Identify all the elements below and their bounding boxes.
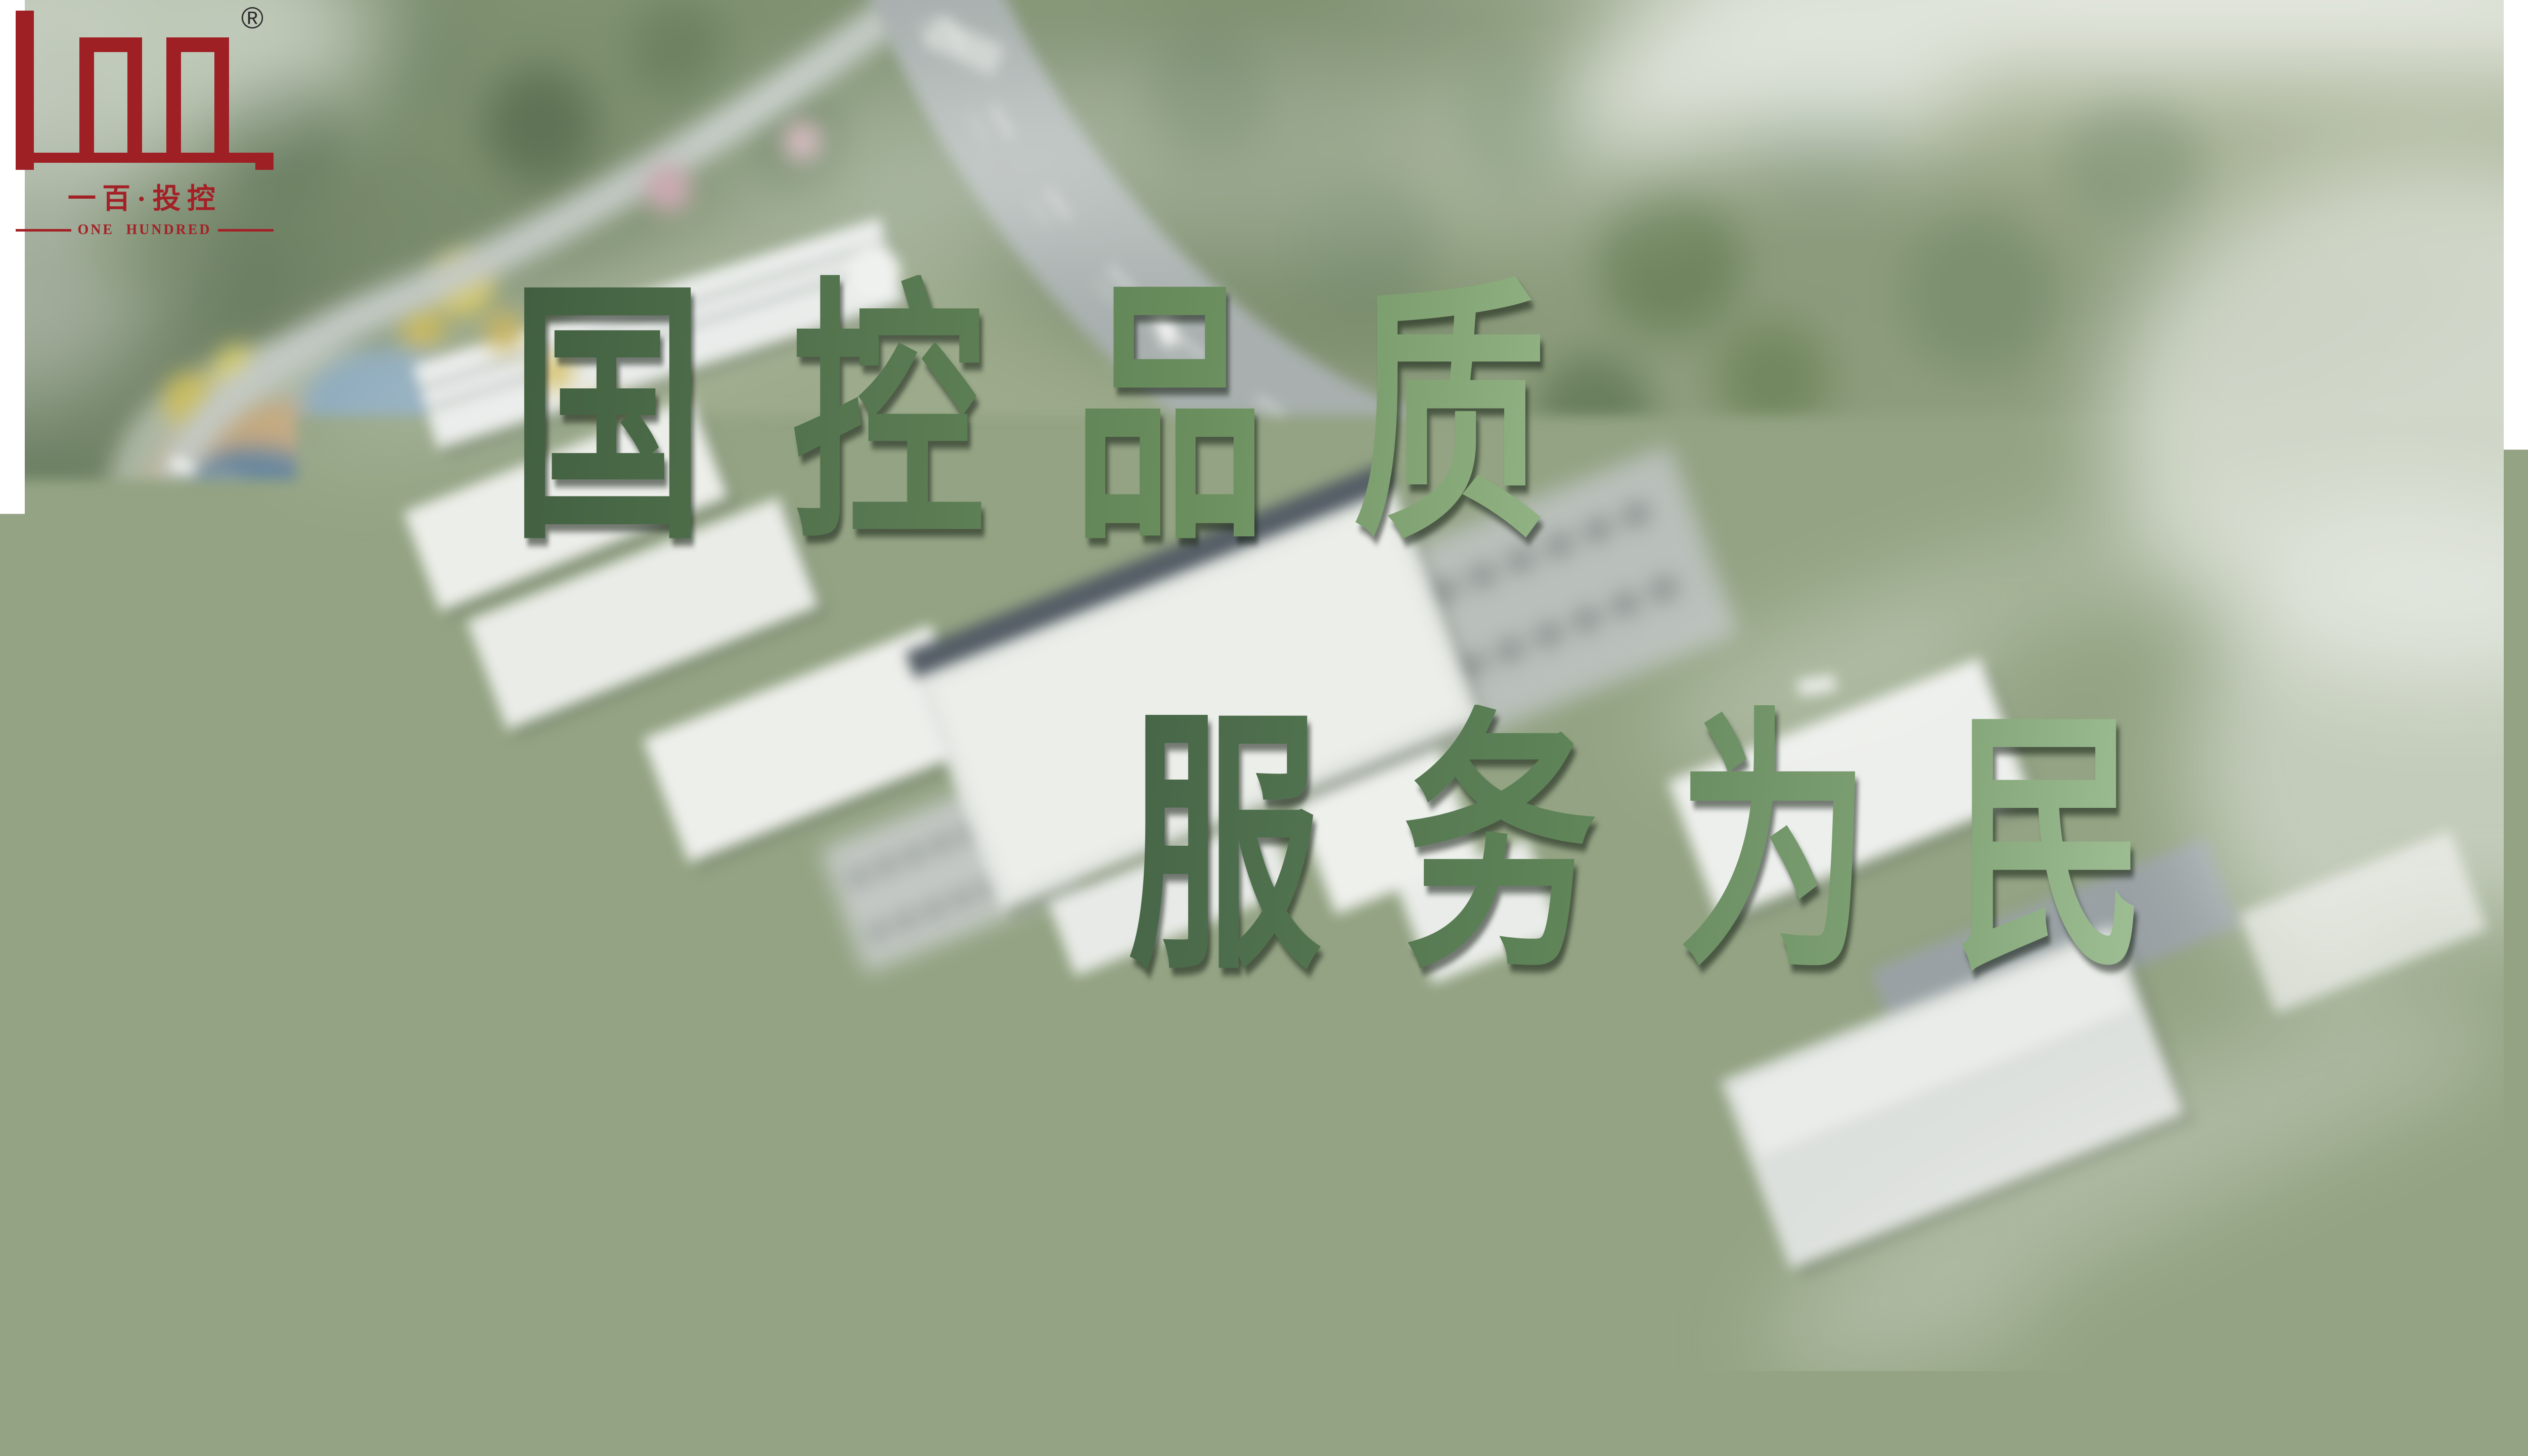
footer-company-address: 公司地址：四川省绵阳市游仙区科学城大道1号: [86, 1399, 909, 1455]
footer-contact-phone: 联系电话：0816-2303222: [1828, 1399, 2267, 1455]
logo-baseline: [16, 153, 274, 163]
logo-digit-zero-2: [166, 37, 229, 154]
slogan-line-1: 国控品质: [511, 275, 1634, 563]
logo-digit-zero-1: [79, 37, 142, 154]
campus-aerial-render: [25, 0, 2504, 1371]
logo-rule-left: [16, 229, 71, 232]
slogan-line-2: 服务为民: [1127, 705, 2228, 992]
logo-rule-right: [218, 229, 274, 232]
logo-english-name: ONE HUNDRED: [16, 222, 274, 238]
logo-chinese-name: 一百·投控: [16, 176, 274, 217]
logo-baseline-foot-right: [255, 162, 274, 170]
slide: ® 一百·投控 ONE HUNDRED 国控品质 服务为民 公司地址：四川省绵阳…: [0, 0, 2528, 1456]
footer-company-website: 公司网址：WWW.100-yl.com: [1112, 1399, 1630, 1455]
company-logo: ® 一百·投控 ONE HUNDRED: [16, 0, 279, 248]
footer-bar: 公司地址：四川省绵阳市游仙区科学城大道1号 公司网址：WWW.100-yl.co…: [0, 1391, 2528, 1456]
registered-trademark-icon: ®: [241, 0, 263, 36]
logo-digit-one: [16, 11, 34, 163]
logo-english-text: ONE HUNDRED: [78, 222, 212, 238]
footer-divider: [0, 1388, 2528, 1391]
logo-baseline-foot-left: [16, 162, 34, 170]
campus-aerial-photo: [25, 0, 2504, 1371]
